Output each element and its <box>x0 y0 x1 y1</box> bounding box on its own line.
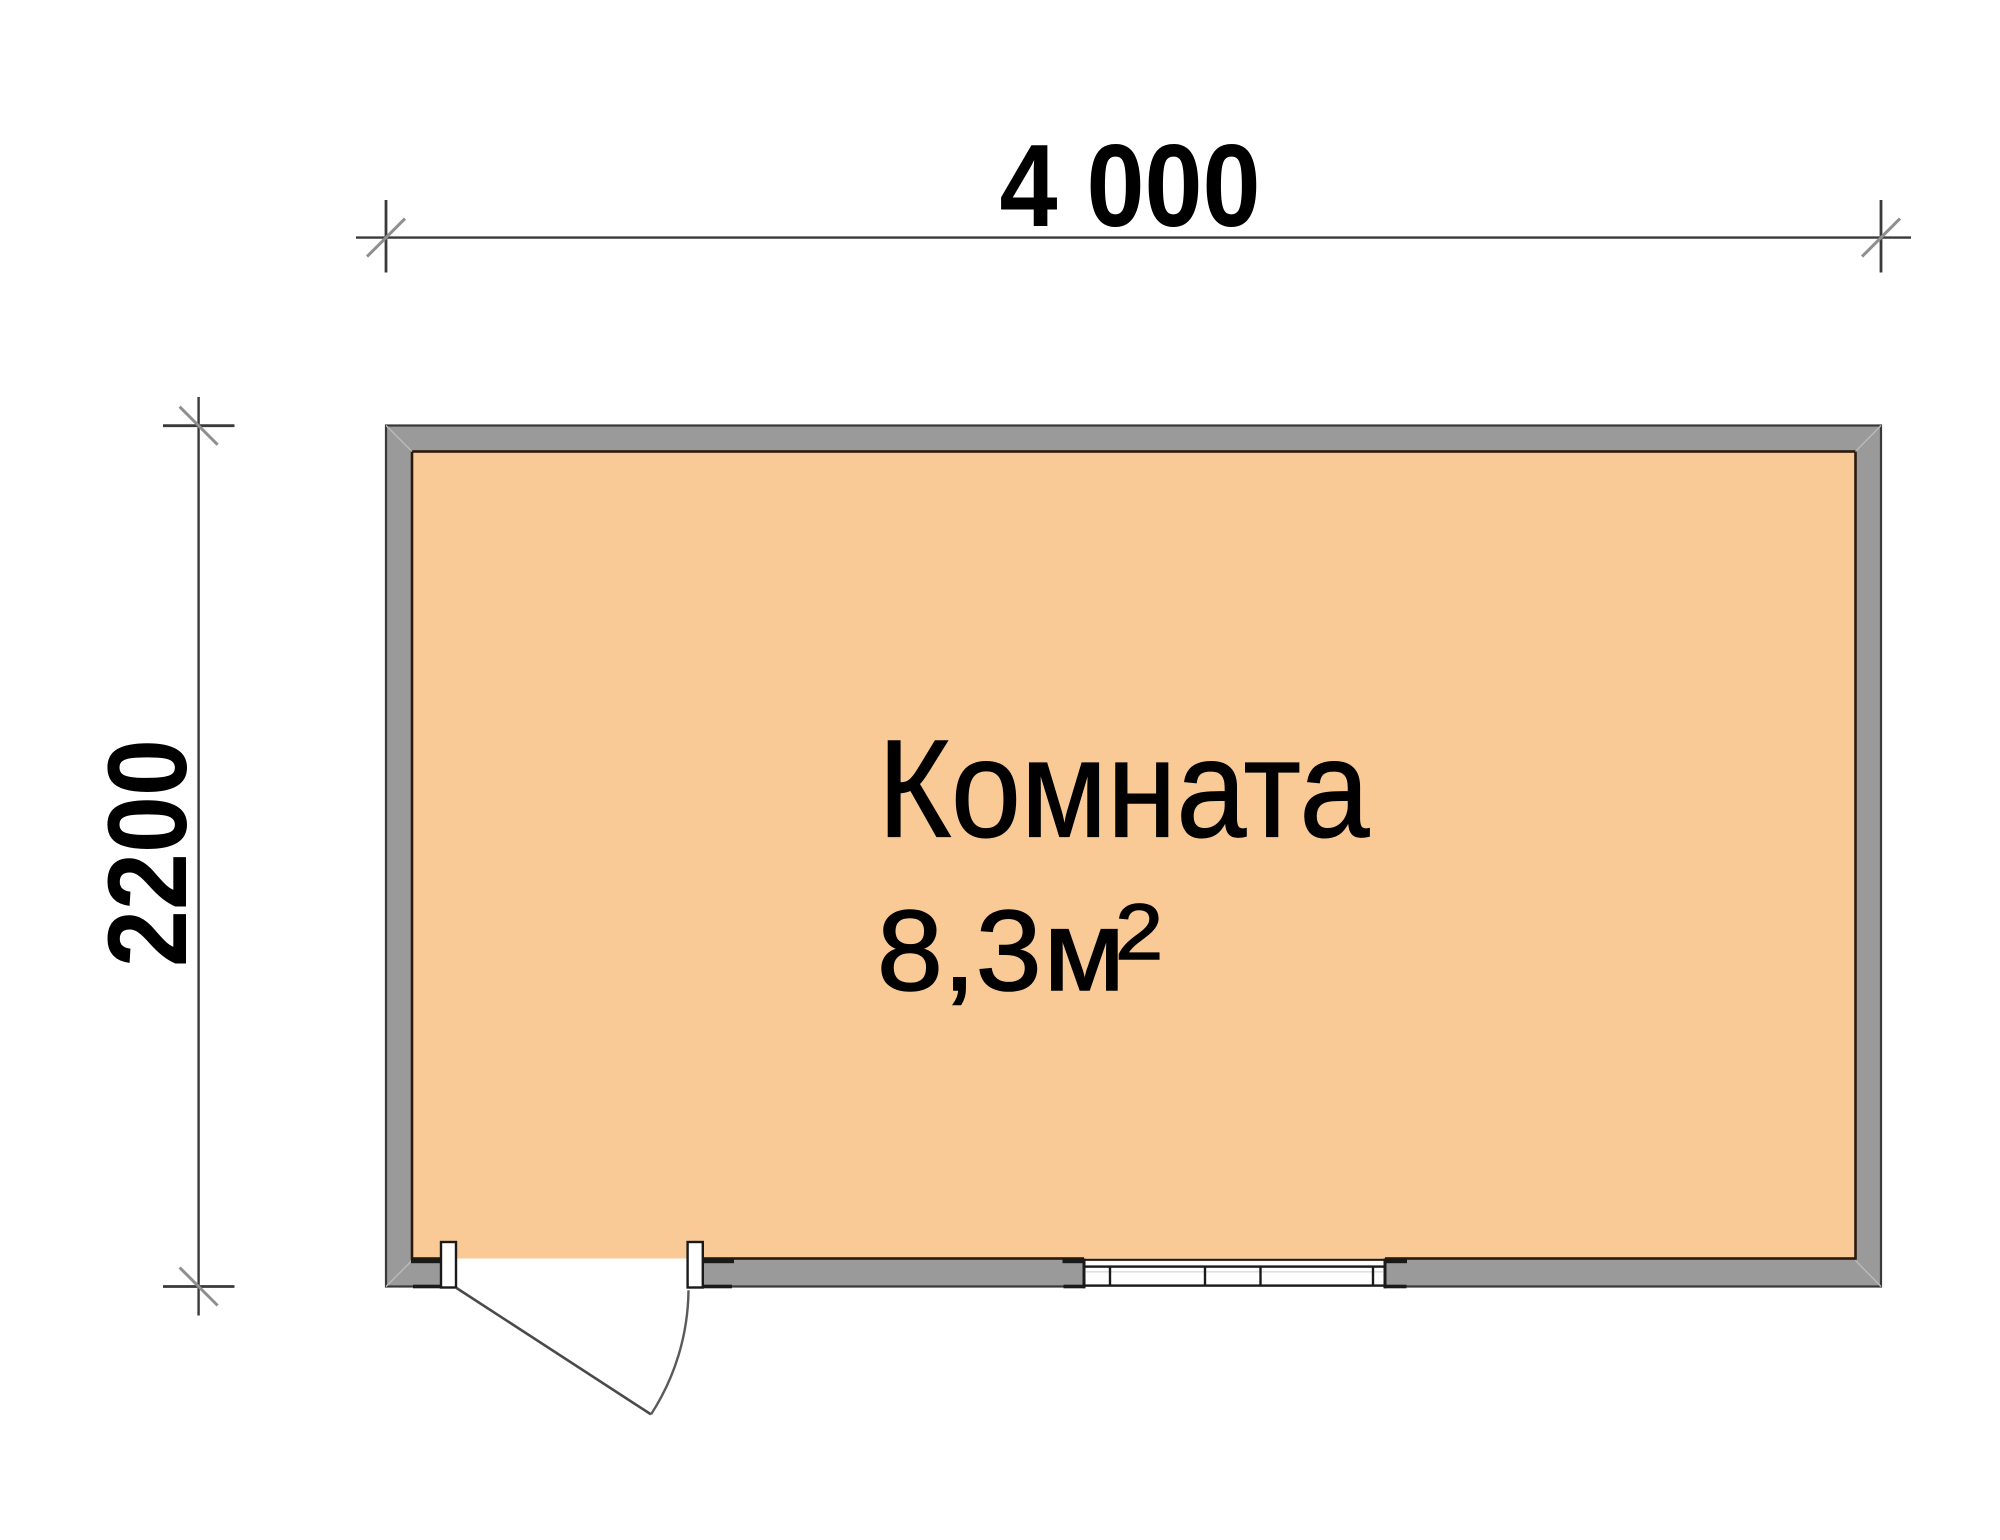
svg-text:2200: 2200 <box>85 739 210 967</box>
svg-text:4 000: 4 000 <box>1000 120 1261 251</box>
svg-text:2: 2 <box>1115 888 1163 976</box>
svg-text:Комната: Комната <box>878 712 1370 867</box>
svg-text:м: м <box>1044 888 1125 1015</box>
svg-text:8,3: 8,3 <box>877 888 1042 1015</box>
